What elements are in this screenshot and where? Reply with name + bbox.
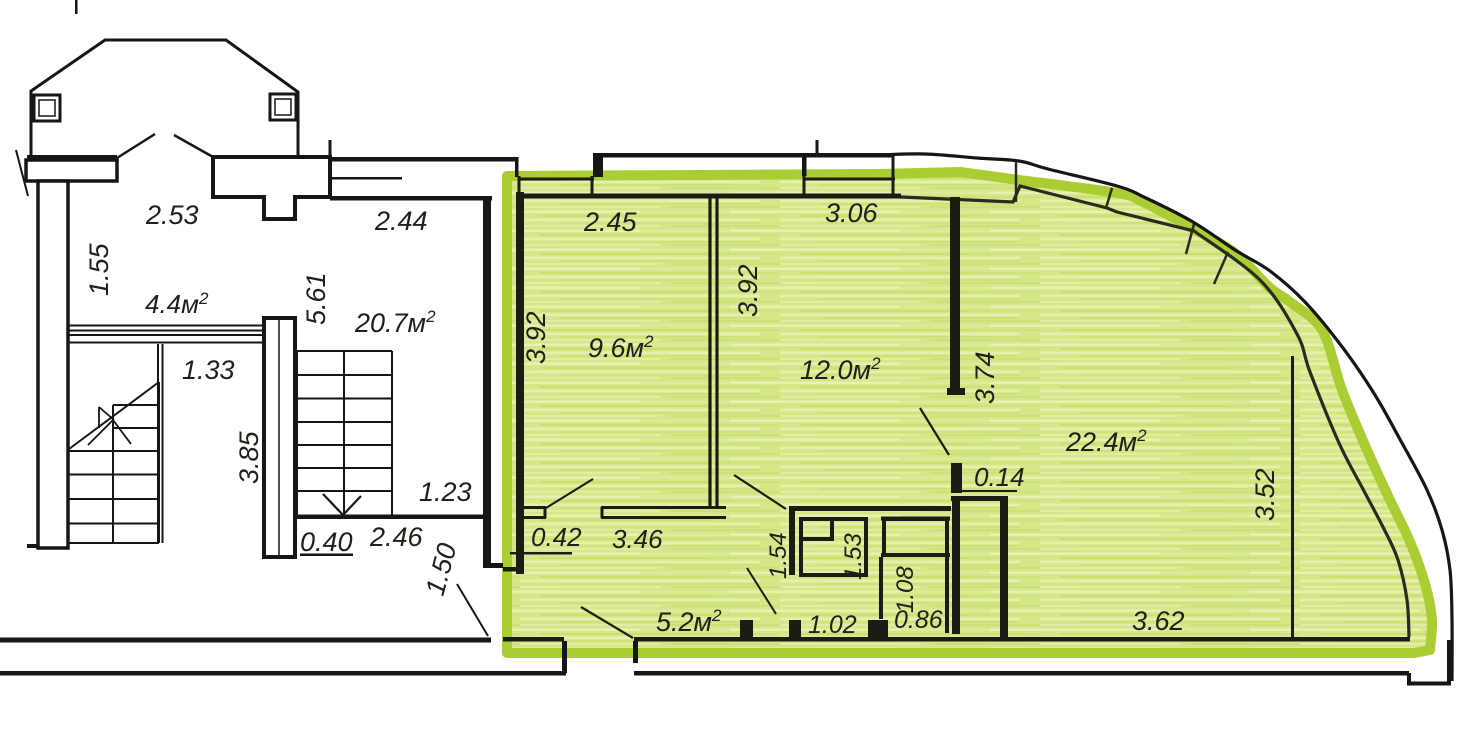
svg-text:3.62: 3.62: [1132, 606, 1185, 636]
svg-text:5.61: 5.61: [301, 272, 331, 325]
svg-text:1.54: 1.54: [765, 532, 792, 579]
svg-text:3.06: 3.06: [825, 198, 879, 228]
svg-text:0.14: 0.14: [974, 462, 1025, 492]
svg-text:1.55: 1.55: [84, 242, 114, 296]
svg-text:12.0м2: 12.0м2: [800, 354, 881, 385]
svg-text:3.46: 3.46: [612, 524, 663, 554]
svg-text:0.42: 0.42: [531, 522, 582, 552]
svg-text:1.53: 1.53: [840, 533, 867, 580]
svg-text:2.44: 2.44: [374, 206, 428, 236]
svg-text:1.33: 1.33: [182, 355, 235, 385]
svg-text:1.50: 1.50: [420, 540, 463, 599]
svg-text:22.4м2: 22.4м2: [1065, 426, 1147, 457]
svg-text:4.4м2: 4.4м2: [145, 289, 209, 319]
svg-text:3.92: 3.92: [521, 311, 551, 364]
svg-text:3.92: 3.92: [733, 264, 763, 317]
svg-text:3.74: 3.74: [970, 351, 1000, 404]
svg-text:0.40: 0.40: [300, 527, 353, 557]
svg-text:1.02: 1.02: [808, 611, 857, 639]
svg-text:2.53: 2.53: [145, 200, 199, 230]
svg-text:1.23: 1.23: [419, 477, 472, 507]
svg-text:20.7м2: 20.7м2: [354, 307, 436, 338]
svg-text:2.45: 2.45: [583, 207, 638, 237]
svg-text:2.46: 2.46: [369, 522, 424, 552]
svg-text:3.85: 3.85: [234, 430, 264, 484]
svg-text:0.86: 0.86: [894, 606, 943, 634]
svg-text:3.52: 3.52: [1250, 468, 1280, 521]
